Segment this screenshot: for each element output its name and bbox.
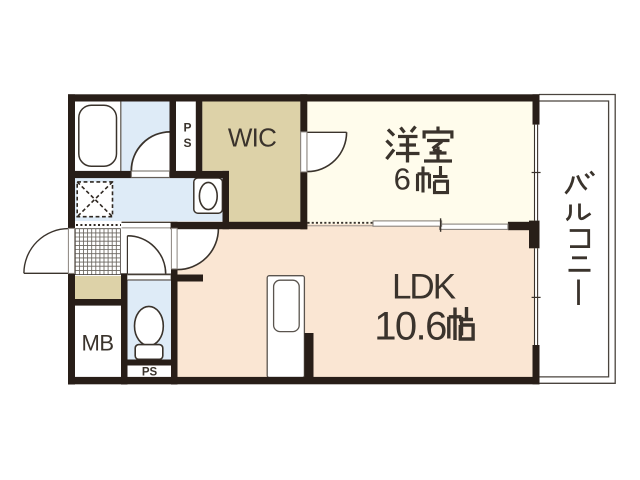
svg-text:PS: PS [142, 366, 158, 378]
svg-text:6: 6 [394, 162, 411, 197]
svg-text:10.6: 10.6 [374, 305, 446, 349]
svg-text:MB: MB [82, 331, 114, 356]
svg-text:LDK: LDK [392, 268, 456, 307]
svg-text:WIC: WIC [228, 123, 276, 153]
svg-text:P: P [183, 121, 191, 135]
svg-text:S: S [183, 136, 191, 150]
